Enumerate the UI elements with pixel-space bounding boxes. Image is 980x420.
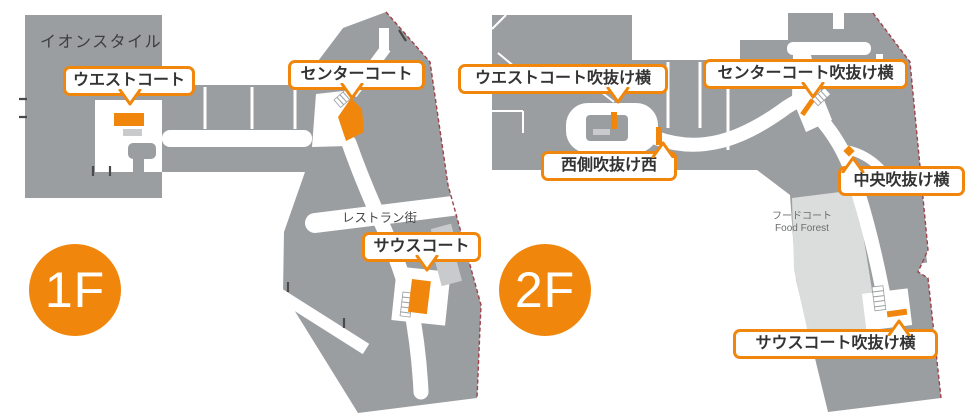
callout-central-void: 中央吹抜け横 — [838, 166, 965, 196]
aeon-style-label: イオンスタイル — [40, 28, 162, 52]
callout-west-court-void: ウエストコート吹抜け横 — [458, 64, 668, 94]
floor-badge-1f: 1F — [29, 244, 121, 336]
west-court-marker — [114, 113, 144, 126]
callout-label: センターコート吹抜け横 — [717, 65, 893, 82]
callout-label: 中央吹抜け横 — [853, 172, 949, 189]
callout-tail-up — [651, 141, 675, 158]
callout-tail-down — [606, 87, 630, 104]
callout-label: ウエストコート — [73, 72, 185, 89]
callout-west-court: ウエストコート — [63, 66, 195, 96]
restaurant-street-label: レストラン街 — [342, 207, 417, 226]
callout-tail-down — [118, 89, 142, 106]
callout-south-court: サウスコート — [362, 232, 481, 262]
food-court-label-en: Food Forest — [762, 223, 842, 235]
callout-label: センターコート — [300, 66, 412, 83]
callout-south-court-void: サウスコート吹抜け横 — [733, 329, 938, 359]
callout-tail-up — [841, 156, 865, 173]
callout-label: ウエストコート吹抜け横 — [475, 70, 651, 87]
callout-center-court: センターコート — [288, 60, 425, 90]
callout-center-court-void: センターコート吹抜け横 — [703, 59, 908, 89]
south-court-marker — [408, 279, 431, 314]
callout-label: 西側吹抜け西 — [561, 157, 657, 174]
floor-badge-2f: 2F — [499, 244, 591, 336]
food-court-label-jp: フードコート — [762, 211, 842, 223]
food-court-label: フードコート Food Forest — [762, 211, 842, 234]
callout-tail-down — [801, 82, 825, 99]
callout-label: サウスコート吹抜け横 — [755, 335, 915, 352]
escalator-icon — [872, 286, 886, 311]
callout-label: サウスコート — [373, 238, 469, 255]
west-court-void-marker — [611, 112, 617, 129]
callout-tail-down — [340, 83, 364, 100]
callout-west-side-void: 西側吹抜け西 — [541, 151, 677, 181]
mall-floor-map: イオンスタイル レストラン街 フードコート Food Forest ウエストコー… — [0, 0, 980, 420]
callout-tail-down — [415, 255, 439, 272]
callout-tail-up — [887, 319, 911, 336]
